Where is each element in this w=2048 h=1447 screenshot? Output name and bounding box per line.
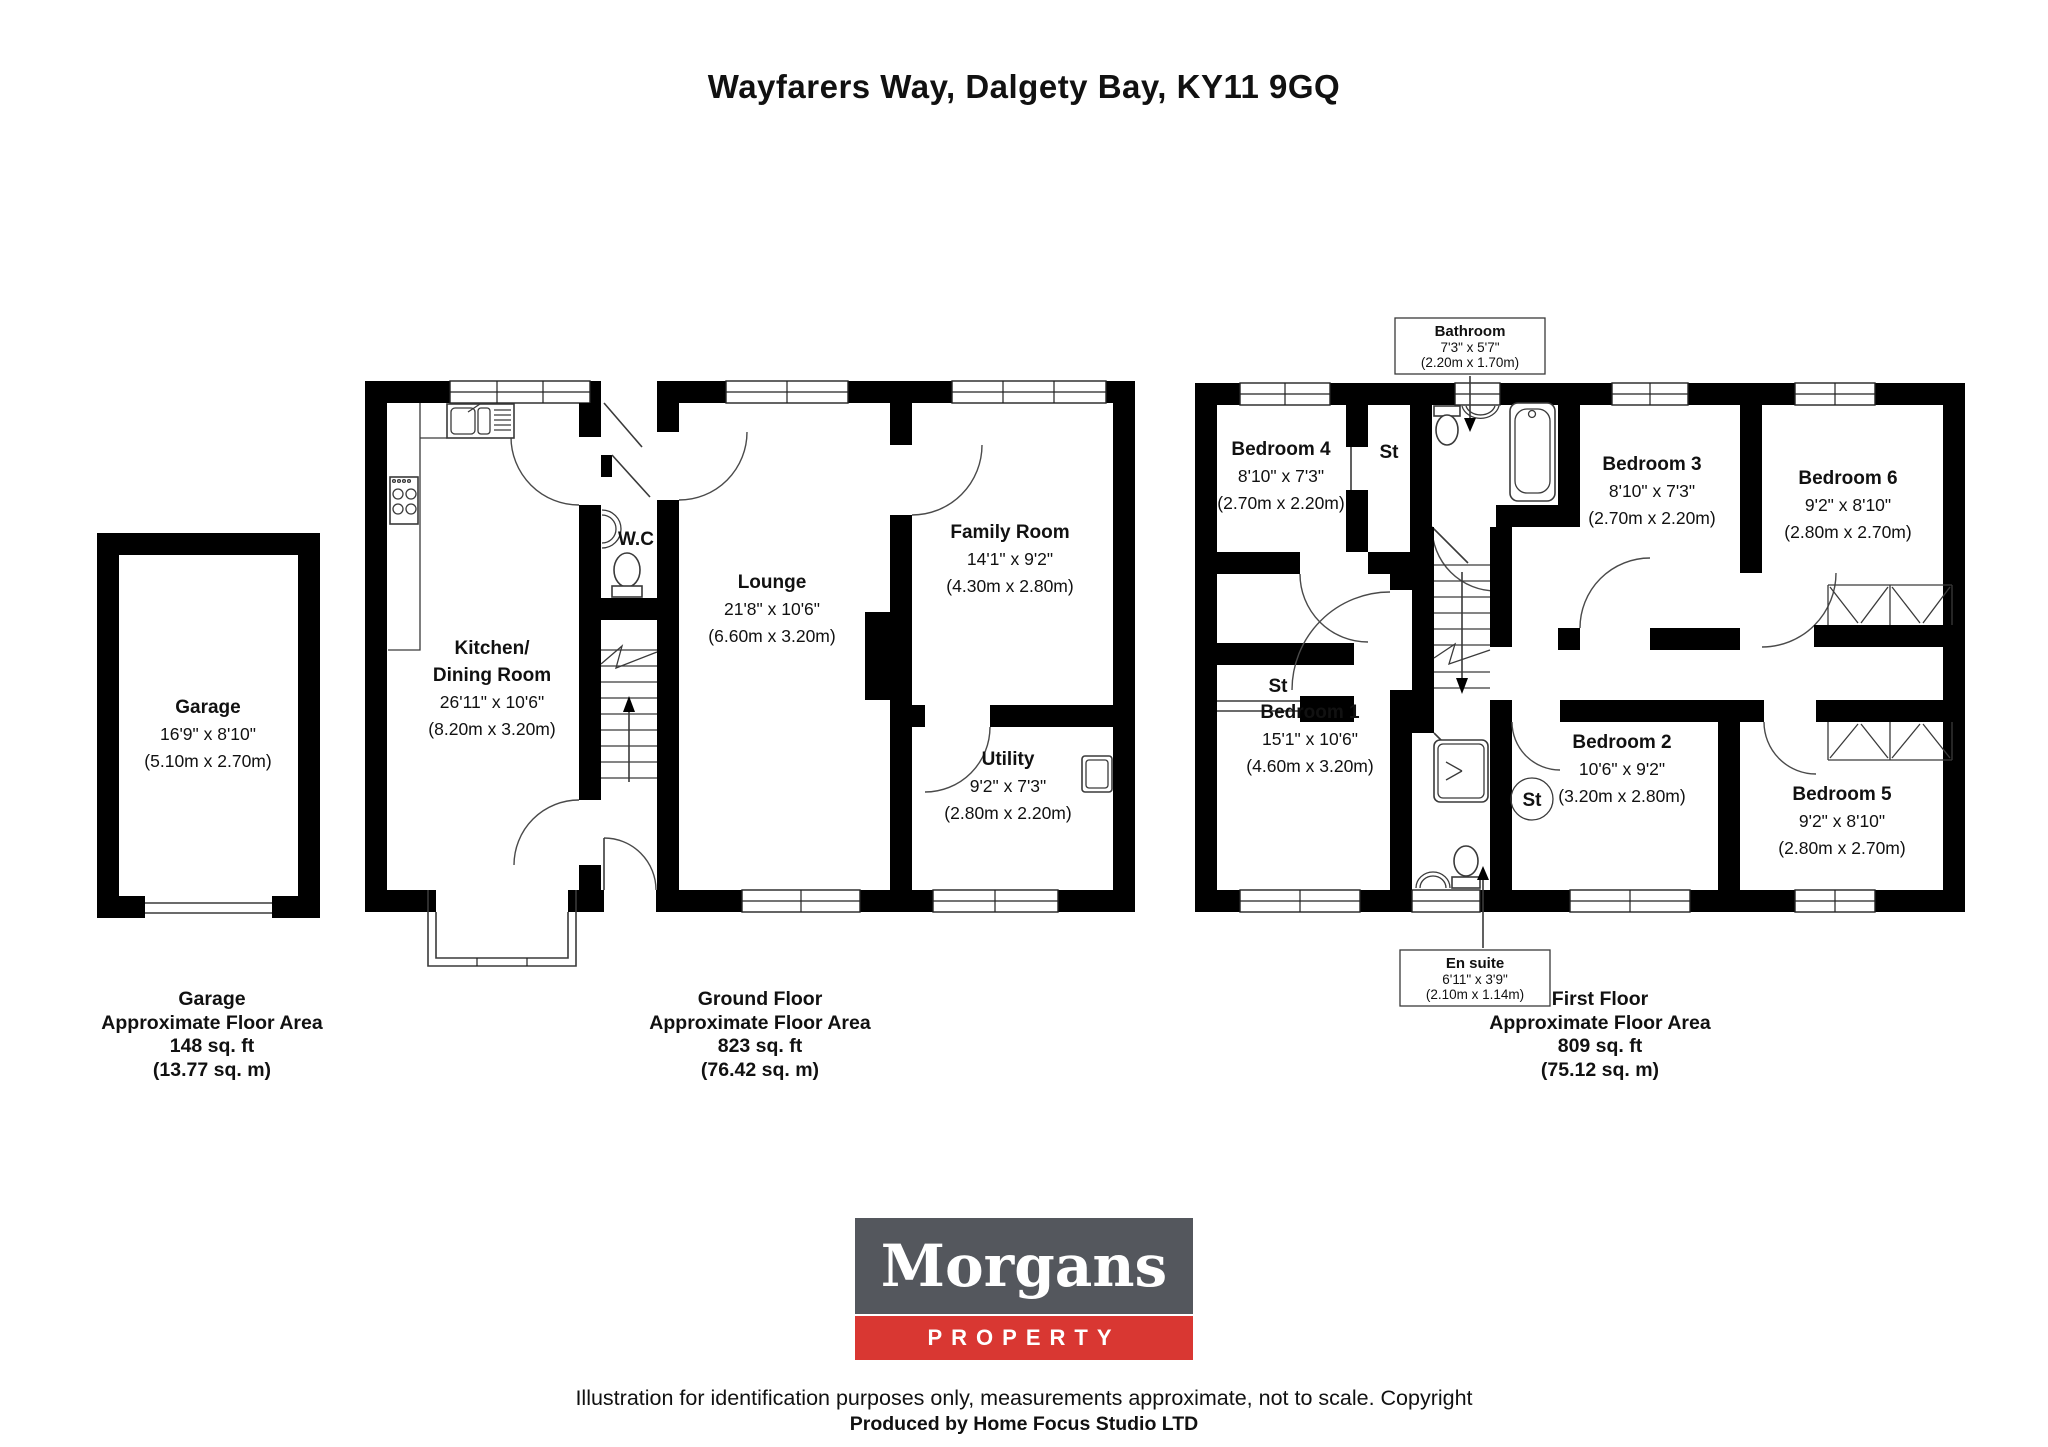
- svg-text:(4.60m x 3.20m): (4.60m x 3.20m): [1246, 756, 1373, 776]
- staircase-down: [1434, 565, 1490, 694]
- svg-text:(8.20m x 3.20m): (8.20m x 3.20m): [428, 719, 555, 739]
- svg-text:Bedroom 6: Bedroom 6: [1798, 468, 1897, 489]
- shower-icon: [1434, 740, 1488, 802]
- svg-text:Bedroom 2: Bedroom 2: [1572, 732, 1671, 753]
- svg-text:Lounge: Lounge: [738, 572, 807, 593]
- garage-door: [145, 903, 272, 913]
- svg-text:(6.60m x 3.20m): (6.60m x 3.20m): [708, 626, 835, 646]
- back-door: [604, 838, 656, 912]
- room-utility-label: Utility 9'2" x 7'3" (2.80m x 2.20m): [944, 749, 1071, 823]
- floorplan-page: Wayfarers Way, Dalgety Bay, KY11 9GQ Gar…: [0, 0, 2048, 1447]
- window: [1612, 383, 1688, 405]
- svg-text:Utility: Utility: [982, 749, 1035, 770]
- window: [1240, 383, 1330, 405]
- logo-tagline: PROPERTY: [927, 1325, 1120, 1351]
- room-garage-label: Garage 16'9" x 8'10" (5.10m x 2.70m): [144, 697, 271, 771]
- hob-icon: [390, 477, 418, 524]
- room-bed5-label: Bedroom 5 9'2" x 8'10" (2.80m x 2.70m): [1778, 784, 1905, 858]
- window: [1795, 383, 1875, 405]
- svg-text:8'10" x 7'3": 8'10" x 7'3": [1609, 481, 1695, 501]
- window: [1240, 890, 1360, 912]
- first-area-title: First Floor: [1470, 988, 1730, 1012]
- door-arc: [511, 437, 579, 505]
- svg-text:(2.20m x 1.70m): (2.20m x 1.70m): [1421, 355, 1519, 370]
- room-lounge-label: Lounge 21'8" x 10'6" (6.60m x 3.20m): [708, 572, 835, 646]
- room-family-label: Family Room 14'1" x 9'2" (4.30m x 2.80m): [946, 522, 1073, 596]
- ensuite-sink-icon: [1416, 872, 1450, 888]
- svg-text:Bedroom 1: Bedroom 1: [1260, 702, 1360, 723]
- svg-text:9'2" x 7'3": 9'2" x 7'3": [970, 776, 1047, 796]
- bay-window: [428, 890, 576, 966]
- bathroom-sink-icon: [1462, 406, 1499, 418]
- room-bed3-label: Bedroom 3 8'10" x 7'3" (2.70m x 2.20m): [1588, 454, 1715, 528]
- room-wc-label: W.C: [618, 529, 654, 550]
- svg-text:8'10" x 7'3": 8'10" x 7'3": [1238, 466, 1324, 486]
- garage-name: Garage: [175, 697, 240, 718]
- door-arc: [1580, 558, 1650, 628]
- ground-area-title: Ground Floor: [630, 988, 890, 1012]
- svg-text:26'11" x 10'6": 26'11" x 10'6": [440, 692, 544, 712]
- wardrobe-icon: [1828, 722, 1952, 760]
- svg-text:14'1" x 9'2": 14'1" x 9'2": [967, 549, 1053, 569]
- window: [450, 381, 590, 403]
- window: [1795, 890, 1875, 912]
- ground-floor-plan: Kitchen/ Dining Room 26'11" x 10'6" (8.2…: [365, 381, 1135, 966]
- svg-text:Bedroom 5: Bedroom 5: [1792, 784, 1892, 805]
- window: [1570, 890, 1690, 912]
- toilet-icon: [1434, 406, 1460, 445]
- svg-text:(2.70m x 2.20m): (2.70m x 2.20m): [1588, 508, 1715, 528]
- door-arc: [912, 445, 982, 515]
- room-kitchen-label: Kitchen/ Dining Room 26'11" x 10'6" (8.2…: [428, 638, 555, 739]
- kitchen-sink-icon: [447, 404, 514, 438]
- storage-label-left: St: [1269, 676, 1289, 697]
- svg-text:15'1" x 10'6": 15'1" x 10'6": [1262, 729, 1358, 749]
- staircase-up: [601, 646, 657, 782]
- svg-text:(4.30m x 2.80m): (4.30m x 2.80m): [946, 576, 1073, 596]
- wardrobe-icon: [1828, 585, 1952, 625]
- garage-dims-metric: (5.10m x 2.70m): [144, 751, 271, 771]
- garage-area-title: Garage: [82, 988, 342, 1012]
- bathtub-icon: [1510, 403, 1555, 501]
- svg-text:Bedroom 4: Bedroom 4: [1231, 439, 1331, 460]
- logo-wordmark-box: Morgans: [855, 1218, 1193, 1314]
- first-floor-area-label: First Floor Approximate Floor Area 809 s…: [1470, 988, 1730, 1082]
- svg-text:(2.80m x 2.70m): (2.80m x 2.70m): [1784, 522, 1911, 542]
- svg-text:Bathroom: Bathroom: [1435, 323, 1506, 340]
- garage-dims-imperial: 16'9" x 8'10": [160, 724, 256, 744]
- wc-door: [612, 455, 650, 497]
- washing-machine-icon: [1082, 756, 1112, 792]
- window: [933, 890, 1058, 912]
- svg-text:7'3" x 5'7": 7'3" x 5'7": [1440, 340, 1499, 355]
- svg-text:Dining Room: Dining Room: [433, 665, 551, 686]
- svg-text:21'8" x 10'6": 21'8" x 10'6": [724, 599, 820, 619]
- agency-logo: Morgans PROPERTY: [855, 1218, 1193, 1360]
- garage-area-label: Garage Approximate Floor Area 148 sq. ft…: [82, 988, 342, 1082]
- room-bed1-label: Bedroom 1 15'1" x 10'6" (4.60m x 3.20m): [1246, 702, 1373, 776]
- window: [952, 381, 1106, 403]
- door-arc: [514, 800, 579, 865]
- svg-text:(2.70m x 2.20m): (2.70m x 2.20m): [1217, 493, 1344, 513]
- kitchen-counter: [388, 403, 447, 650]
- svg-text:St: St: [1523, 790, 1543, 811]
- first-floor-plan: St: [1195, 318, 1965, 1006]
- svg-text:Family Room: Family Room: [950, 522, 1069, 543]
- disclaimer-line1: Illustration for identification purposes…: [0, 1386, 2048, 1411]
- ensuite-toilet-icon: [1452, 846, 1480, 888]
- svg-text:(2.80m x 2.20m): (2.80m x 2.20m): [944, 803, 1071, 823]
- window: [742, 890, 860, 912]
- door-arc: [1764, 722, 1816, 774]
- room-bed2-label: Bedroom 2 10'6" x 9'2" (3.20m x 2.80m): [1558, 732, 1685, 806]
- svg-text:W.C: W.C: [618, 529, 654, 550]
- svg-text:En suite: En suite: [1446, 955, 1504, 972]
- svg-text:Kitchen/: Kitchen/: [455, 638, 531, 659]
- door-arc: [1512, 722, 1560, 770]
- wc-toilet-icon: [612, 553, 642, 597]
- svg-text:10'6" x 9'2": 10'6" x 9'2": [1579, 759, 1665, 779]
- svg-text:9'2" x 8'10": 9'2" x 8'10": [1799, 811, 1885, 831]
- door-arc: [1300, 574, 1368, 642]
- svg-text:6'11" x 3'9": 6'11" x 3'9": [1442, 972, 1508, 987]
- ground-floor-area-label: Ground Floor Approximate Floor Area 823 …: [630, 988, 890, 1082]
- svg-text:(2.80m x 2.70m): (2.80m x 2.70m): [1778, 838, 1905, 858]
- room-bed4-label: Bedroom 4 8'10" x 7'3" (2.70m x 2.20m): [1217, 439, 1344, 513]
- window: [1455, 383, 1500, 405]
- storage-label-top: St: [1380, 442, 1400, 463]
- door-arc: [679, 432, 747, 500]
- window: [726, 381, 848, 403]
- svg-text:Bedroom 3: Bedroom 3: [1602, 454, 1701, 475]
- window: [1412, 890, 1480, 912]
- front-door: [601, 381, 657, 447]
- room-bed6-label: Bedroom 6 9'2" x 8'10" (2.80m x 2.70m): [1784, 468, 1911, 542]
- svg-text:9'2" x 8'10": 9'2" x 8'10": [1805, 495, 1891, 515]
- svg-text:(3.20m x 2.80m): (3.20m x 2.80m): [1558, 786, 1685, 806]
- garage-plan: Garage 16'9" x 8'10" (5.10m x 2.70m): [97, 533, 320, 918]
- storage-circle: St: [1511, 778, 1553, 820]
- door-arc: [1292, 592, 1390, 690]
- logo-tagline-bar: PROPERTY: [855, 1316, 1193, 1360]
- disclaimer-line2: Produced by Home Focus Studio LTD: [0, 1413, 2048, 1436]
- logo-wordmark: Morgans: [881, 1232, 1167, 1300]
